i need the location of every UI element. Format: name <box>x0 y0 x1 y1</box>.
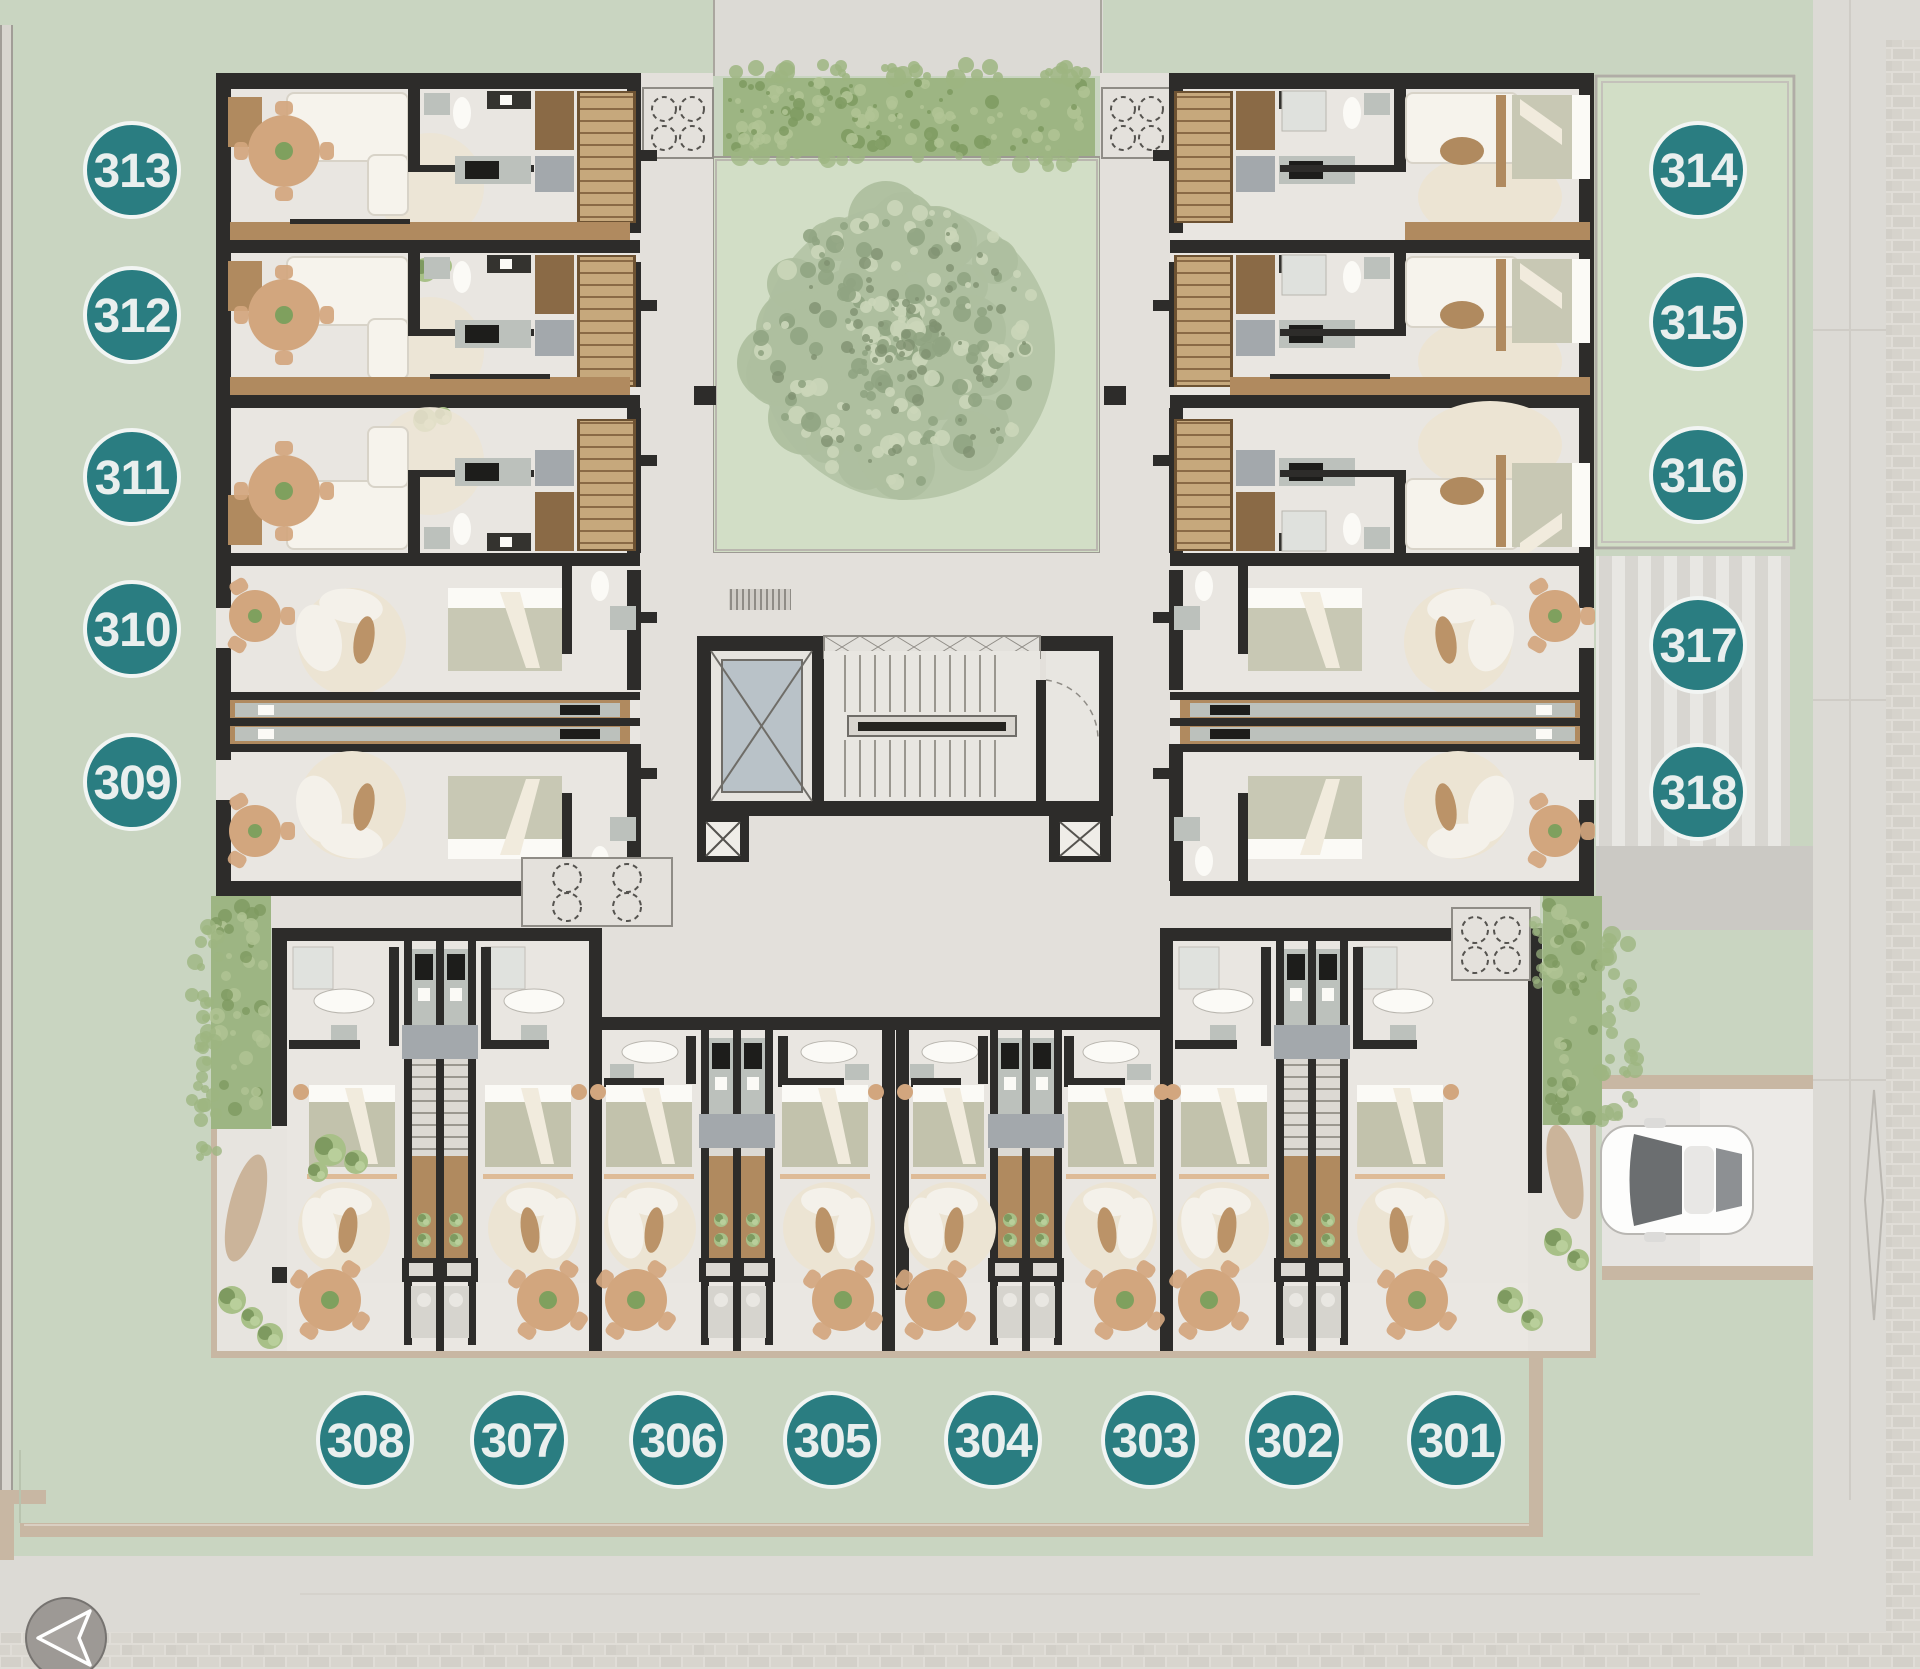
svg-text:312: 312 <box>93 290 170 343</box>
svg-text:313: 313 <box>93 145 170 198</box>
svg-text:317: 317 <box>1659 620 1736 673</box>
svg-text:316: 316 <box>1659 450 1736 503</box>
svg-text:309: 309 <box>93 757 170 810</box>
svg-text:302: 302 <box>1255 1415 1332 1468</box>
svg-text:314: 314 <box>1659 145 1737 198</box>
svg-text:315: 315 <box>1659 297 1736 350</box>
svg-text:306: 306 <box>639 1415 716 1468</box>
svg-text:311: 311 <box>95 452 170 505</box>
svg-text:318: 318 <box>1659 767 1736 820</box>
svg-text:301: 301 <box>1417 1415 1494 1468</box>
svg-text:308: 308 <box>326 1415 403 1468</box>
svg-text:307: 307 <box>480 1415 557 1468</box>
svg-text:303: 303 <box>1111 1415 1188 1468</box>
svg-text:305: 305 <box>793 1415 870 1468</box>
svg-text:310: 310 <box>93 604 170 657</box>
svg-text:304: 304 <box>954 1415 1032 1468</box>
